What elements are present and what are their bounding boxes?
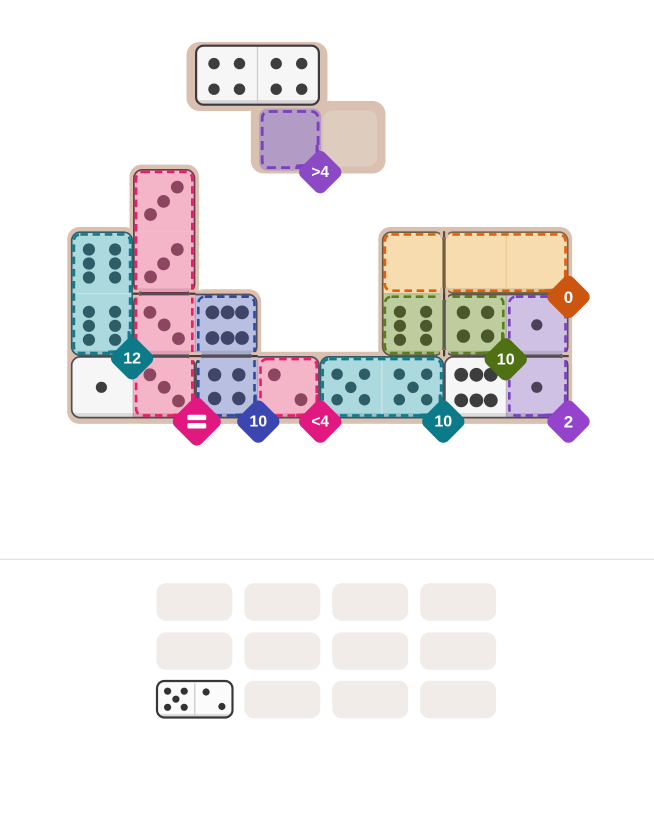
- svg-text:12: 12: [123, 350, 141, 367]
- svg-text:10: 10: [434, 414, 452, 431]
- svg-text:2: 2: [564, 413, 573, 432]
- svg-text:>4: >4: [311, 164, 329, 181]
- svg-text:10: 10: [249, 414, 267, 431]
- svg-text:<4: <4: [311, 414, 329, 431]
- svg-text:0: 0: [564, 288, 573, 307]
- svg-text:10: 10: [497, 351, 515, 368]
